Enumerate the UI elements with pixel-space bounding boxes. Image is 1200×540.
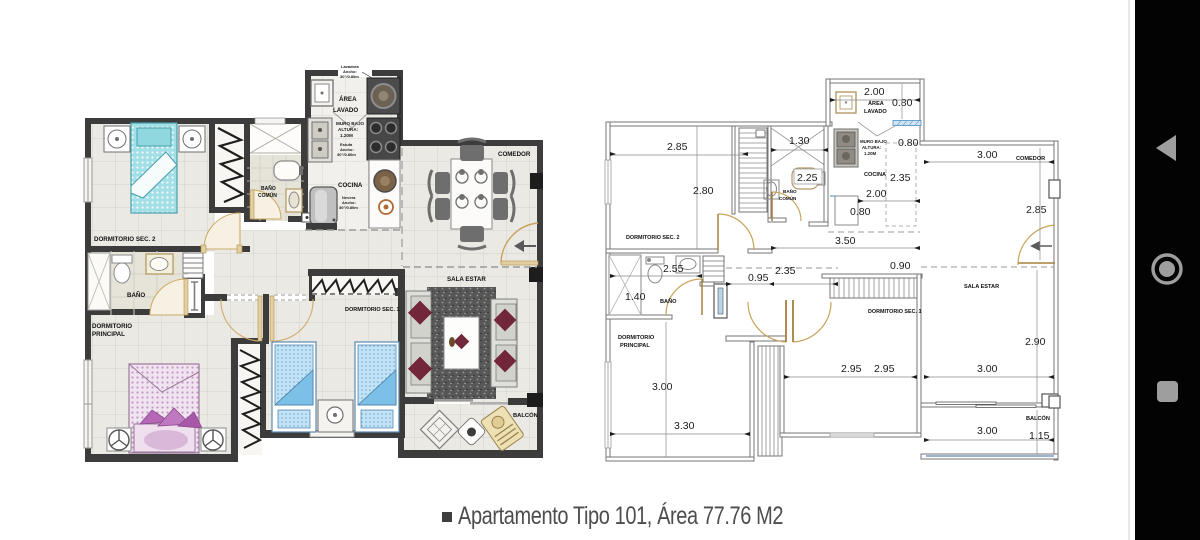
svg-text:MURO BAJO: MURO BAJO [860,139,887,144]
svg-text:DORMITORIO SEC. 2: DORMITORIO SEC. 2 [626,235,680,241]
svg-text:BAÑO: BAÑO [783,188,797,194]
svg-text:30"/0.80m: 30"/0.80m [340,74,359,79]
svg-text:0.80: 0.80 [898,137,919,149]
svg-text:COMEDOR: COMEDOR [498,151,531,158]
svg-text:3.00: 3.00 [977,425,998,437]
svg-text:LAVADO: LAVADO [333,107,358,114]
svg-text:COCINA: COCINA [338,182,363,189]
svg-text:BAÑO: BAÑO [660,298,677,305]
svg-text:ÁREA: ÁREA [868,100,884,107]
svg-text:1.40: 1.40 [625,291,646,303]
svg-text:2.90: 2.90 [1025,336,1046,348]
svg-text:BALCÓN: BALCÓN [513,411,538,419]
svg-text:2.95: 2.95 [841,363,862,375]
svg-text:2.85: 2.85 [667,141,688,153]
svg-text:2.00: 2.00 [866,188,887,200]
svg-text:2.35: 2.35 [890,172,911,184]
svg-text:0.90: 0.90 [890,260,911,272]
svg-text:3.30: 3.30 [674,420,695,432]
svg-text:0.80: 0.80 [850,206,871,218]
svg-text:COMÚN: COMÚN [779,195,797,201]
svg-text:DORMITORIO: DORMITORIO [618,335,655,341]
svg-text:PRINCIPAL: PRINCIPAL [92,331,125,338]
svg-text:1.20M: 1.20M [864,151,877,156]
svg-text:MURO BAJO: MURO BAJO [336,121,365,126]
svg-text:ALTURA:: ALTURA: [338,127,359,132]
svg-text:DORMITORIO SEC. 2: DORMITORIO SEC. 2 [94,236,156,243]
svg-text:COMEDOR: COMEDOR [1016,156,1045,162]
svg-text:1.30: 1.30 [789,135,810,147]
svg-text:1.20M: 1.20M [340,133,353,138]
svg-text:2.95: 2.95 [874,363,895,375]
svg-text:2.85: 2.85 [1026,204,1047,216]
svg-text:2.00: 2.00 [864,86,885,98]
svg-text:LAVADO: LAVADO [864,109,887,115]
svg-text:COCINA: COCINA [864,172,886,178]
svg-text:SALA ESTAR: SALA ESTAR [964,284,999,290]
svg-text:2.35: 2.35 [775,265,796,277]
svg-text:SALA ESTAR: SALA ESTAR [447,276,486,283]
svg-text:2.55: 2.55 [663,263,684,275]
svg-text:BAÑO: BAÑO [261,185,276,192]
svg-text:3.00: 3.00 [977,149,998,161]
svg-text:PRINCIPAL: PRINCIPAL [620,343,650,349]
svg-text:DORMITORIO SEC. 1: DORMITORIO SEC. 1 [345,307,400,313]
svg-text:3.00: 3.00 [977,363,998,375]
svg-text:COMÚN: COMÚN [258,192,277,199]
svg-text:DORMITORIO: DORMITORIO [92,323,132,330]
svg-text:BAÑO: BAÑO [127,292,145,299]
svg-text:30"/0.80m: 30"/0.80m [339,205,358,210]
svg-text:DORMITORIO SEC. 1: DORMITORIO SEC. 1 [868,309,922,315]
svg-text:2.80: 2.80 [693,185,714,197]
svg-text:ALTURA:: ALTURA: [862,145,882,150]
svg-text:3.50: 3.50 [835,235,856,247]
svg-text:ÁREA: ÁREA [339,96,357,103]
svg-text:3.00: 3.00 [652,381,673,393]
svg-text:BALCÓN: BALCÓN [1026,414,1050,422]
svg-text:2.25: 2.25 [797,172,818,184]
svg-text:30"/0.80m: 30"/0.80m [337,152,356,157]
svg-text:1.15: 1.15 [1029,430,1050,442]
svg-text:0.95: 0.95 [748,272,769,284]
